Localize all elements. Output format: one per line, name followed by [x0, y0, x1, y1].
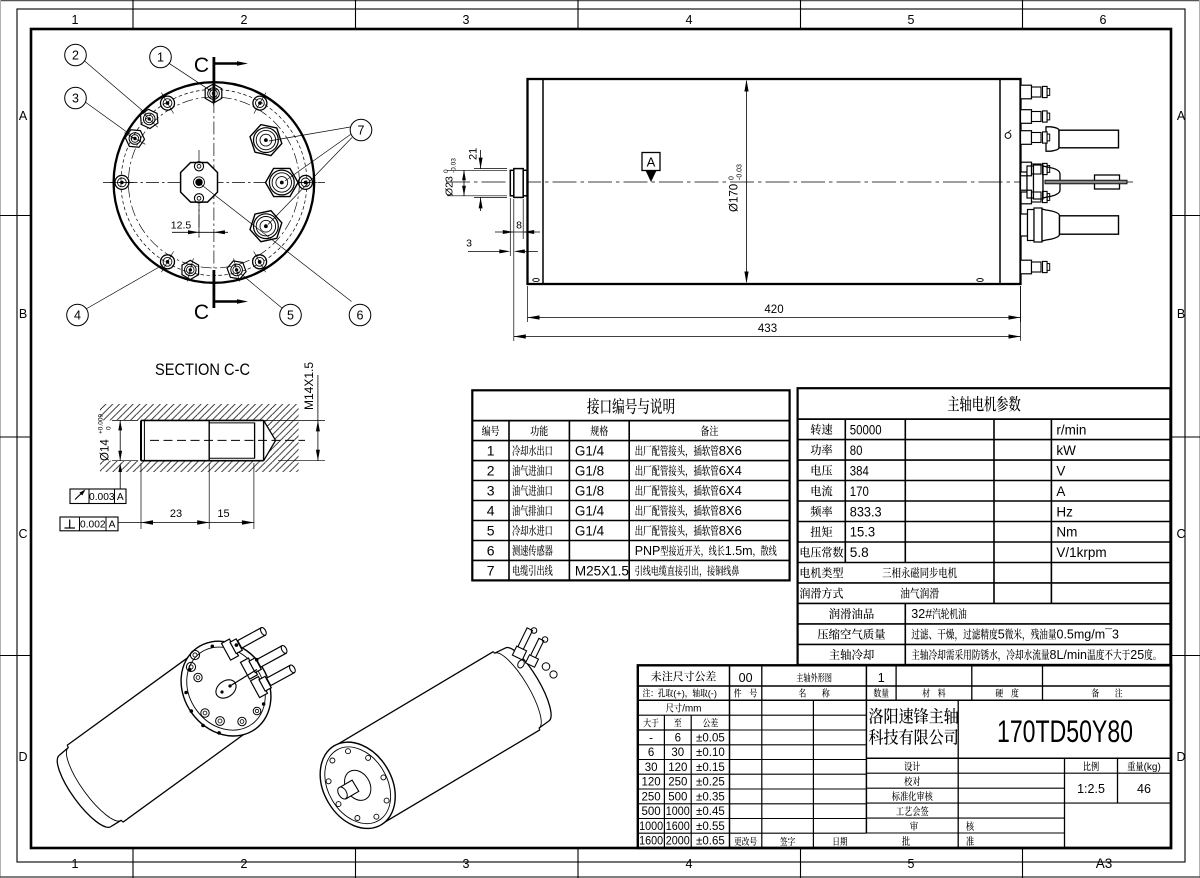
svg-text:C: C: [194, 301, 209, 324]
svg-text:4: 4: [686, 13, 693, 27]
svg-text:A: A: [117, 492, 124, 503]
svg-text:1000: 1000: [639, 821, 663, 833]
svg-text:8X6: 8X6: [719, 523, 742, 538]
svg-text:Hz: Hz: [1056, 504, 1073, 519]
svg-text:15: 15: [217, 508, 229, 520]
svg-text:0: 0: [443, 169, 450, 173]
svg-text:B: B: [19, 307, 27, 321]
svg-text:7: 7: [358, 123, 365, 137]
svg-text:1: 1: [878, 671, 885, 685]
svg-text:C: C: [1176, 527, 1185, 541]
svg-text:SECTION C-C: SECTION C-C: [155, 360, 250, 379]
svg-text:-0.03: -0.03: [737, 164, 744, 180]
svg-text:2: 2: [487, 463, 495, 479]
svg-text:D: D: [1176, 750, 1185, 764]
svg-text:30: 30: [671, 747, 684, 759]
svg-text:+0.009: +0.009: [98, 414, 105, 434]
svg-text:21: 21: [468, 148, 480, 160]
svg-text:PNP: PNP: [635, 544, 661, 558]
svg-text:120: 120: [642, 777, 661, 789]
svg-text:A: A: [1056, 484, 1065, 499]
svg-text:Ø170: Ø170: [729, 184, 741, 212]
svg-text:1600: 1600: [639, 836, 663, 848]
svg-text:3: 3: [463, 13, 470, 27]
svg-text:5: 5: [998, 628, 1005, 642]
svg-text:5.8: 5.8: [850, 545, 869, 560]
svg-text:50000: 50000: [850, 422, 882, 437]
svg-text:8X6: 8X6: [719, 503, 742, 518]
svg-text:G1/4: G1/4: [575, 524, 605, 539]
svg-text:0: 0: [729, 176, 736, 180]
svg-text:M14X1.5: M14X1.5: [302, 362, 316, 410]
svg-text:0.5mg/m¯3: 0.5mg/m¯3: [1057, 628, 1120, 642]
svg-text:C: C: [18, 527, 27, 541]
svg-text:170TD50Y80: 170TD50Y80: [997, 713, 1133, 749]
svg-text:6X4: 6X4: [719, 463, 742, 478]
svg-text:1.5m: 1.5m: [725, 544, 753, 558]
svg-text:0.003: 0.003: [89, 492, 115, 503]
svg-text:±0.35: ±0.35: [696, 791, 725, 803]
svg-text:4: 4: [74, 308, 81, 322]
svg-text:5: 5: [487, 523, 495, 539]
svg-text:A: A: [647, 155, 656, 170]
svg-text:6: 6: [487, 542, 495, 558]
svg-text:±0.65: ±0.65: [696, 836, 725, 848]
svg-text:4: 4: [487, 503, 495, 519]
svg-text:Nm: Nm: [1056, 525, 1077, 540]
svg-text:2: 2: [241, 13, 248, 27]
svg-text:7: 7: [487, 562, 495, 578]
svg-text:0.002: 0.002: [80, 520, 106, 531]
svg-text:G1/4: G1/4: [575, 504, 605, 519]
svg-text:±0.25: ±0.25: [696, 777, 725, 789]
svg-text:A3: A3: [1096, 856, 1113, 871]
svg-text:r/min: r/min: [1056, 422, 1086, 437]
svg-text:±0.45: ±0.45: [696, 806, 725, 818]
svg-text:V: V: [1056, 463, 1065, 478]
svg-text:6: 6: [648, 747, 654, 759]
svg-text:120: 120: [668, 762, 687, 774]
svg-text:G1/4: G1/4: [575, 444, 605, 459]
svg-text:6: 6: [1100, 13, 1107, 27]
svg-text:±0.55: ±0.55: [696, 821, 725, 833]
svg-text:M25X1.5: M25X1.5: [575, 563, 629, 578]
svg-text:384: 384: [850, 463, 869, 478]
svg-text:6: 6: [357, 308, 364, 322]
svg-text:46: 46: [1137, 782, 1151, 796]
svg-text:500: 500: [668, 791, 687, 803]
svg-text:/mm: /mm: [682, 704, 701, 715]
svg-text:1:2.5: 1:2.5: [1077, 782, 1105, 796]
svg-text:3: 3: [466, 238, 472, 250]
svg-text:420: 420: [764, 304, 783, 316]
svg-text:2000: 2000: [666, 836, 690, 848]
svg-text:Ø14: Ø14: [100, 439, 112, 461]
svg-text:25: 25: [1130, 648, 1144, 662]
svg-text:80: 80: [850, 443, 863, 458]
svg-text:0: 0: [106, 426, 113, 430]
svg-text:32#: 32#: [911, 607, 932, 621]
svg-text:(kg): (kg): [1144, 762, 1161, 773]
svg-text:250: 250: [642, 791, 661, 803]
svg-text:1: 1: [72, 857, 79, 871]
svg-text:3: 3: [487, 483, 495, 499]
svg-text:15.3: 15.3: [850, 525, 875, 540]
svg-text:3: 3: [463, 857, 470, 871]
svg-text:A: A: [1177, 109, 1186, 123]
svg-text:30: 30: [645, 762, 658, 774]
svg-text:±0.10: ±0.10: [696, 747, 725, 759]
svg-text:170: 170: [850, 484, 869, 499]
svg-text:23: 23: [170, 508, 182, 520]
svg-text:(-): (-): [708, 689, 717, 699]
svg-text:6: 6: [675, 732, 681, 744]
svg-text:-: -: [649, 732, 653, 744]
svg-text:5: 5: [287, 308, 294, 322]
svg-text:1000: 1000: [666, 806, 690, 818]
svg-text:Ø23: Ø23: [444, 176, 456, 196]
svg-text:3: 3: [72, 91, 79, 105]
svg-text:6X4: 6X4: [719, 483, 742, 498]
svg-text:8L/min: 8L/min: [1050, 648, 1088, 662]
svg-text:kW: kW: [1056, 443, 1076, 458]
svg-text:433: 433: [758, 323, 777, 335]
svg-text:(+): (+): [673, 689, 685, 699]
svg-text:8: 8: [516, 220, 522, 232]
svg-text:12.5: 12.5: [171, 220, 192, 232]
svg-text:A: A: [109, 520, 116, 531]
svg-text:V/1krpm: V/1krpm: [1056, 545, 1106, 560]
svg-text:C: C: [194, 54, 209, 77]
svg-text:5: 5: [908, 13, 915, 27]
svg-text:00: 00: [739, 671, 753, 685]
svg-text:833.3: 833.3: [850, 504, 882, 519]
svg-text:±0.05: ±0.05: [696, 732, 725, 744]
svg-text:2: 2: [72, 48, 79, 62]
svg-text:500: 500: [642, 806, 661, 818]
svg-text:B: B: [1177, 307, 1185, 321]
svg-text:1: 1: [157, 50, 164, 64]
svg-text:D: D: [18, 750, 27, 764]
svg-text:1: 1: [487, 443, 495, 459]
svg-text:±0.15: ±0.15: [696, 762, 725, 774]
svg-text:A: A: [19, 109, 28, 123]
svg-text:-0.03: -0.03: [451, 158, 458, 173]
svg-text:8X6: 8X6: [719, 443, 742, 458]
svg-text:5: 5: [908, 857, 915, 871]
svg-text:G1/8: G1/8: [575, 484, 604, 499]
svg-text:1600: 1600: [666, 821, 690, 833]
svg-text:G1/8: G1/8: [575, 464, 604, 479]
svg-text:1: 1: [72, 13, 79, 27]
svg-text:250: 250: [668, 777, 687, 789]
svg-text:2: 2: [241, 857, 248, 871]
svg-text:4: 4: [686, 857, 693, 871]
